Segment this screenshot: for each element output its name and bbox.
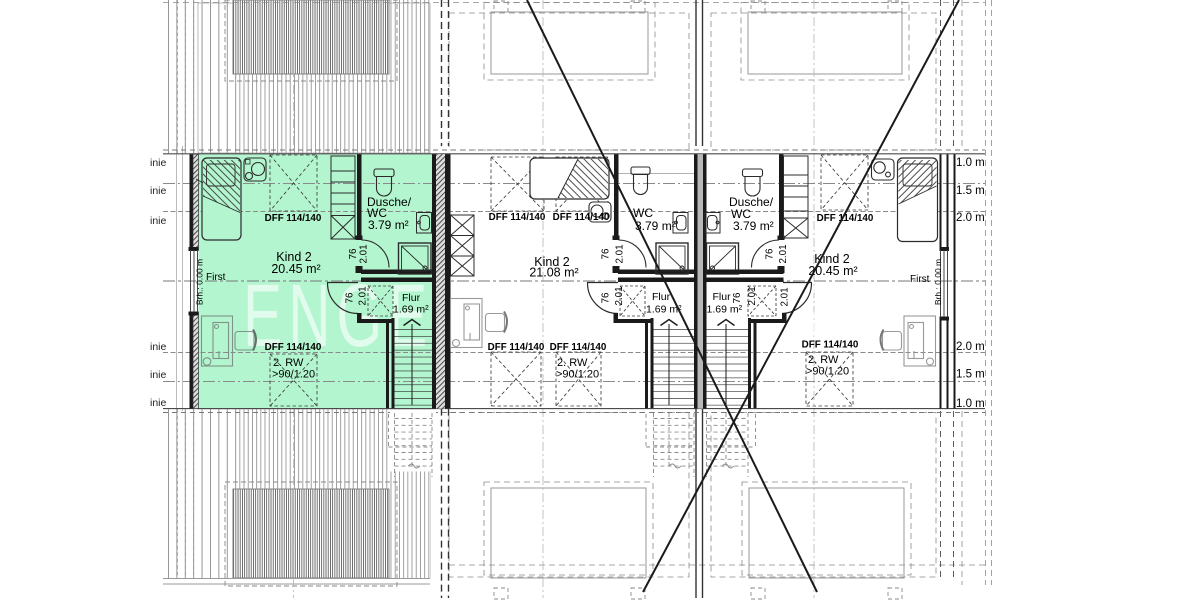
- svg-text:First: First: [206, 272, 226, 283]
- svg-text:2.01: 2.01: [780, 287, 791, 306]
- svg-text:2.01: 2.01: [359, 244, 370, 263]
- svg-text:DFF 114/140: DFF 114/140: [488, 342, 545, 353]
- svg-text:3.79 m²: 3.79 m²: [368, 218, 409, 232]
- svg-text:DFF 114/140: DFF 114/140: [802, 340, 859, 351]
- svg-text:Flur: Flur: [713, 291, 732, 303]
- svg-text:2. RW: 2. RW: [557, 357, 588, 369]
- svg-text:>90/1.20: >90/1.20: [556, 369, 599, 381]
- svg-text:2.0 m: 2.0 m: [956, 341, 985, 353]
- svg-text:1.0 m: 1.0 m: [956, 157, 985, 169]
- svg-text:DFF 114/140: DFF 114/140: [550, 342, 607, 353]
- svg-text:inie: inie: [150, 369, 167, 381]
- svg-text:2.01: 2.01: [615, 244, 626, 263]
- svg-text:inie: inie: [150, 397, 167, 409]
- svg-text:First: First: [910, 274, 930, 285]
- svg-text:1.5 m: 1.5 m: [956, 369, 985, 381]
- svg-text:inie: inie: [150, 215, 167, 227]
- svg-text:Brh.: 0.00 m: Brh.: 0.00 m: [195, 259, 205, 305]
- svg-text:76: 76: [765, 248, 776, 259]
- svg-text:Brh.: 0.00 m: Brh.: 0.00 m: [933, 259, 943, 305]
- svg-text:76: 76: [348, 248, 359, 259]
- svg-text:inie: inie: [150, 157, 167, 169]
- svg-text:1.0 m: 1.0 m: [956, 398, 985, 410]
- svg-text:76: 76: [345, 292, 356, 303]
- svg-text:3.79 m²: 3.79 m²: [733, 219, 774, 233]
- svg-text:inie: inie: [150, 341, 167, 353]
- svg-text:1.69 m²: 1.69 m²: [707, 304, 743, 316]
- svg-text:2.01: 2.01: [778, 244, 789, 263]
- svg-text:1.5 m: 1.5 m: [956, 185, 985, 197]
- svg-text:WC: WC: [633, 206, 653, 220]
- svg-text:DFF 114/140: DFF 114/140: [489, 212, 546, 223]
- svg-text:2.0 m: 2.0 m: [956, 212, 985, 224]
- svg-text:>90/1.20: >90/1.20: [806, 366, 849, 378]
- svg-text:76: 76: [732, 292, 743, 303]
- svg-text:DFF 114/140: DFF 114/140: [553, 212, 610, 223]
- svg-text:2.01: 2.01: [614, 286, 625, 305]
- svg-text:2. RW: 2. RW: [808, 354, 839, 366]
- svg-text:20.45 m²: 20.45 m²: [271, 262, 320, 276]
- svg-text:76: 76: [601, 248, 612, 259]
- svg-text:21.08 m²: 21.08 m²: [529, 266, 578, 280]
- svg-text:inie: inie: [150, 185, 167, 197]
- svg-text:DFF 114/140: DFF 114/140: [265, 213, 322, 224]
- svg-text:Flur: Flur: [402, 292, 421, 304]
- svg-text:1.69 m²: 1.69 m²: [393, 304, 429, 316]
- svg-text:DFF 114/140: DFF 114/140: [265, 342, 322, 353]
- svg-text:Flur: Flur: [652, 291, 671, 303]
- svg-text:2.01: 2.01: [747, 286, 758, 305]
- svg-text:2. RW: 2. RW: [273, 357, 304, 369]
- svg-text:76: 76: [601, 292, 612, 303]
- svg-text:2.01: 2.01: [358, 286, 369, 305]
- svg-text:20.45 m²: 20.45 m²: [808, 264, 857, 278]
- svg-text:>90/1.20: >90/1.20: [272, 369, 315, 381]
